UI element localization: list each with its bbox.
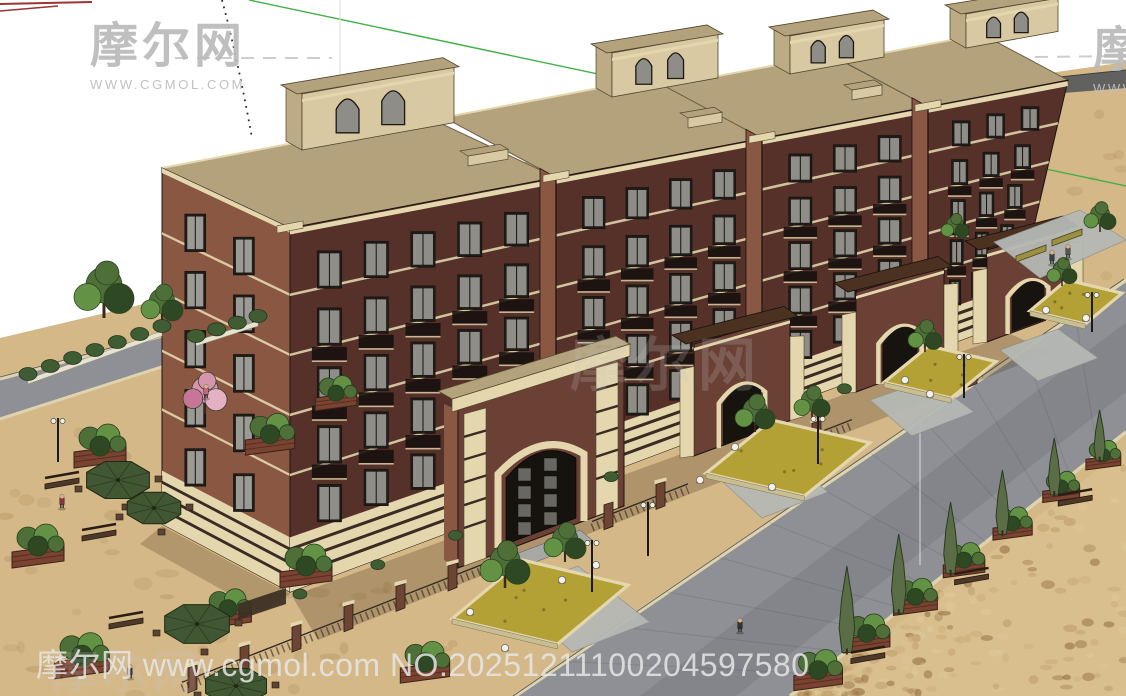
planter-bush	[328, 385, 344, 401]
cobble-stone	[1055, 588, 1067, 594]
balcony-railing	[873, 246, 906, 256]
lamp-globe	[1085, 292, 1090, 297]
planter-bush	[1068, 480, 1079, 491]
door-light	[544, 458, 557, 471]
tree-canopy	[749, 394, 765, 410]
hedge-bush	[131, 328, 149, 341]
plaza-mottle	[159, 594, 174, 599]
bed-speckle	[1060, 306, 1063, 309]
balcony-railing	[452, 311, 487, 324]
cobble-stone	[947, 625, 953, 630]
balcony-ledge	[621, 329, 654, 331]
gate-pier	[944, 283, 958, 359]
bed-speckle	[522, 589, 525, 592]
cobble-stone	[996, 633, 1009, 640]
cobble-stone	[926, 686, 937, 692]
balcony-railing	[621, 268, 654, 279]
cobble-stone	[907, 688, 915, 693]
plaza-mottle	[288, 684, 300, 694]
arched-window	[382, 91, 405, 125]
planter-bush	[72, 645, 93, 666]
tree-canopy	[544, 538, 563, 557]
cobble-stone	[1052, 675, 1065, 680]
bed-speckle	[1053, 300, 1056, 303]
cobble-stone	[1046, 543, 1052, 548]
person-head	[128, 664, 132, 668]
door-light	[518, 504, 531, 517]
bed-speckle	[542, 608, 545, 611]
cobble-stone	[911, 625, 921, 629]
arched-window	[811, 41, 825, 63]
planter-bush	[828, 661, 843, 676]
planter-bush	[924, 588, 938, 602]
planter-bush	[296, 556, 316, 576]
lamp-globe	[1094, 292, 1099, 297]
cobble-stone	[945, 602, 956, 610]
balcony-ledge	[828, 225, 861, 227]
plaza-mottle	[448, 640, 458, 648]
hedge-bush	[187, 330, 205, 343]
tree-canopy	[104, 284, 134, 314]
tree-canopy	[735, 409, 753, 427]
cobble-stone	[1063, 675, 1071, 680]
planter-bush	[956, 552, 972, 568]
balcony-railing	[359, 335, 394, 348]
plaza-mottle	[4, 556, 12, 562]
umbrella-hub	[195, 622, 199, 626]
cobble-stone	[944, 667, 955, 672]
dome-light	[558, 576, 565, 583]
dome-light	[501, 644, 508, 651]
cobble-stone	[938, 625, 946, 633]
hedge-bush	[153, 320, 171, 333]
balcony-railing	[708, 246, 741, 257]
cobble-stone	[981, 635, 993, 641]
tree-canopy	[941, 224, 954, 237]
cobble-stone	[1002, 653, 1010, 662]
patio-chair	[116, 514, 123, 520]
cobble-stone	[1110, 499, 1119, 504]
cobble-stone	[905, 673, 913, 679]
plaza-mottle	[100, 539, 109, 544]
cobble-stone	[1029, 675, 1039, 684]
balcony-railing	[452, 366, 487, 379]
balcony-ledge	[979, 187, 1003, 189]
bed-speckle	[960, 383, 963, 386]
dome-light	[592, 561, 599, 568]
cobble-stone	[893, 646, 905, 654]
tree-canopy	[955, 224, 969, 238]
balcony-ledge	[708, 257, 741, 259]
cobble-stone	[1090, 558, 1100, 565]
plaza-mottle	[105, 549, 120, 555]
balcony-ledge	[976, 227, 997, 229]
balcony-ledge	[948, 195, 972, 197]
balcony-railing	[499, 299, 534, 311]
cobble-stone	[1091, 639, 1099, 646]
bed-speckle	[821, 448, 824, 451]
plaza-mottle	[294, 650, 309, 662]
planter-bush	[90, 436, 110, 456]
fence-pillar	[604, 502, 613, 530]
tree-canopy	[1062, 269, 1077, 284]
planter-bush	[48, 536, 64, 552]
cobble-stone	[1065, 642, 1075, 649]
balcony-ledge	[312, 478, 347, 480]
balcony-railing	[621, 318, 654, 329]
cobble-stone	[976, 594, 985, 602]
bed-speckle	[792, 469, 795, 472]
lamp-globe	[650, 502, 655, 507]
balcony-railing	[1004, 210, 1025, 219]
patio-chair	[186, 504, 193, 510]
planter-bush	[93, 645, 110, 662]
cobble-stone	[862, 667, 873, 676]
cobble-stone	[1051, 527, 1060, 532]
tree-canopy	[74, 284, 101, 311]
yard-hedge	[371, 560, 385, 570]
cobble-stone	[965, 635, 971, 644]
person-body	[1066, 248, 1070, 255]
balcony-railing	[359, 450, 394, 463]
person-shadow	[202, 398, 210, 401]
bed-speckle	[1068, 292, 1071, 295]
cobble-stone	[1054, 515, 1067, 520]
planter-bush	[28, 536, 48, 556]
balcony-railing	[405, 435, 440, 448]
yard-hedge	[449, 530, 463, 540]
plaza-mottle	[155, 569, 179, 577]
balcony-ledge	[1011, 179, 1035, 181]
tree-canopy	[1084, 214, 1098, 228]
plaza-mottle	[319, 653, 340, 660]
person-head	[1066, 244, 1070, 248]
lamp-globe	[594, 540, 599, 545]
tree-canopy	[807, 386, 821, 400]
balcony-ledge	[499, 311, 534, 313]
lamp-globe	[60, 418, 65, 423]
cobble-stone	[1003, 619, 1012, 627]
patio-chair	[158, 529, 165, 535]
lamp-globe	[641, 502, 646, 507]
planter-bush	[1110, 448, 1121, 459]
court-mottle	[1113, 150, 1124, 159]
balcony-railing	[664, 354, 697, 365]
portal-side	[444, 404, 458, 568]
tree-canopy	[755, 409, 775, 429]
lamp-globe	[51, 418, 56, 423]
bed-speckle	[1082, 293, 1085, 296]
hedge-bush	[86, 344, 104, 357]
fence-pillar	[448, 563, 457, 591]
cobble-stone	[875, 682, 888, 689]
gate-pier	[842, 312, 856, 394]
cobble-stone	[1063, 624, 1077, 632]
cobble-stone	[1073, 525, 1084, 532]
balcony-ledge	[405, 392, 440, 394]
cobble-stone	[1040, 665, 1053, 670]
cobble-stone	[912, 642, 919, 650]
umbrella-hub	[152, 506, 156, 510]
arched-window	[1014, 12, 1028, 32]
tree-canopy	[156, 284, 173, 301]
hedge-bush	[64, 352, 82, 365]
balcony-ledge	[621, 379, 654, 381]
planter-bush	[972, 552, 985, 565]
balcony-railing	[312, 347, 347, 361]
cobble-stone	[999, 545, 1009, 553]
cobble-stone	[1037, 524, 1049, 532]
planter-bush	[416, 653, 435, 672]
cobble-stone	[1063, 656, 1074, 661]
cobble-stone	[1111, 594, 1119, 602]
yard-hedge	[837, 384, 851, 394]
balcony-ledge	[664, 268, 697, 270]
hedge-bush	[228, 316, 246, 329]
plaza-mottle	[340, 642, 349, 654]
fence-pillar	[188, 665, 197, 693]
arched-window	[987, 17, 1001, 37]
arched-window	[336, 99, 359, 133]
balcony-railing	[664, 257, 697, 268]
planter-bush	[858, 625, 876, 643]
cobble-stone	[988, 587, 999, 593]
planter-bush	[1020, 516, 1032, 528]
plaza-mottle	[25, 567, 38, 575]
plaza-mottle	[26, 666, 50, 673]
cobble-stone	[1060, 685, 1073, 690]
tree-canopy	[565, 538, 586, 559]
cobble-stone	[1107, 587, 1121, 591]
cobble-stone	[1082, 618, 1094, 626]
balcony-ledge	[873, 214, 906, 216]
person-shadow	[58, 508, 66, 511]
cobble-stone	[969, 598, 977, 605]
patio-chair	[155, 476, 162, 482]
door-light	[544, 512, 557, 525]
fence-pillar	[656, 481, 665, 509]
balcony-railing	[664, 305, 697, 316]
cobble-stone	[970, 631, 983, 637]
dome-light	[901, 376, 908, 383]
balcony-ledge	[312, 419, 347, 421]
bed-speckle	[515, 596, 518, 599]
cobble-stone	[1104, 686, 1113, 691]
door-light	[518, 486, 531, 499]
cobble-stone	[1092, 673, 1100, 678]
balcony-ledge	[359, 406, 394, 408]
cobble-stone	[970, 661, 981, 665]
cobble-stone	[1023, 644, 1034, 650]
bed-speckle	[564, 598, 567, 601]
lamp-globe	[957, 354, 962, 359]
cobble-stone	[1082, 673, 1094, 681]
tree-canopy	[480, 559, 503, 582]
balcony-railing	[784, 227, 817, 237]
penthouse-side	[286, 85, 302, 150]
hedge-bush	[19, 368, 37, 381]
patio-chair	[201, 649, 208, 655]
balcony-ledge	[405, 336, 440, 338]
cobble-stone	[946, 593, 955, 598]
tree-canopy	[951, 213, 962, 224]
balcony-ledge	[452, 324, 487, 326]
tree-canopy	[812, 399, 830, 417]
balcony-railing	[947, 266, 966, 275]
cobble-stone	[968, 587, 975, 596]
person-shadow	[126, 678, 134, 681]
person-head	[60, 494, 64, 498]
dome-light	[696, 476, 703, 483]
gate-pier	[680, 366, 694, 458]
cobble-stone	[832, 689, 845, 695]
umbrella-hub	[116, 478, 120, 482]
cobble-stone	[1098, 663, 1109, 669]
bed-speckle	[933, 363, 936, 366]
door-light	[544, 494, 557, 507]
balcony-railing	[1011, 170, 1035, 179]
tree-canopy	[925, 332, 942, 349]
cobble-stone	[1011, 581, 1018, 586]
yard-hedge	[293, 589, 307, 599]
cobble-stone	[936, 635, 947, 640]
planter-bush	[809, 661, 828, 680]
tree-canopy	[1095, 202, 1108, 215]
balcony-ledge	[1004, 219, 1025, 221]
person-body	[1050, 254, 1054, 261]
person-body	[738, 622, 742, 629]
balcony-railing	[976, 218, 997, 227]
balcony-ledge	[784, 237, 817, 239]
lamp-globe	[966, 354, 971, 359]
tree-canopy	[95, 261, 119, 285]
cobble-stone	[991, 555, 1004, 560]
tree-canopy	[559, 522, 576, 539]
person-body	[60, 498, 64, 505]
cobble-stone	[938, 671, 952, 678]
tree-canopy	[1047, 269, 1061, 283]
hedge-bush	[108, 336, 126, 349]
cobble-stone	[927, 626, 934, 633]
tree-canopy	[505, 559, 530, 584]
cobble-stone	[1067, 578, 1079, 586]
balcony-ledge	[359, 463, 394, 465]
bed-speckle	[503, 620, 506, 623]
cobble-stone	[1087, 652, 1094, 658]
balcony-railing	[979, 178, 1003, 187]
balcony-railing	[621, 367, 654, 378]
balcony-ledge	[359, 348, 394, 350]
fence-pillar	[344, 604, 353, 632]
plaza-mottle	[37, 497, 52, 508]
dome-light	[1082, 314, 1089, 321]
cobble-stone	[953, 637, 959, 642]
cobble-stone	[924, 612, 930, 617]
person-shadow	[1064, 258, 1072, 261]
tree-canopy	[908, 332, 923, 347]
patio-chair	[235, 620, 242, 626]
person-shadow	[1048, 264, 1056, 267]
person-head	[738, 618, 742, 622]
cobble-stone	[920, 662, 927, 667]
patio-chair	[272, 682, 279, 688]
planter-bush	[110, 436, 126, 452]
bed-speckle	[929, 379, 932, 382]
cobble-stone	[1078, 504, 1087, 511]
patio-chair	[153, 630, 160, 636]
tree-canopy	[162, 300, 183, 321]
balcony-ledge	[664, 316, 697, 318]
balcony-ledge	[664, 365, 697, 367]
cobble-stone	[899, 625, 911, 630]
dome-light	[466, 608, 473, 615]
cobble-stone	[886, 666, 897, 671]
cobble-stone	[1027, 567, 1037, 571]
cobble-stone	[1103, 621, 1114, 627]
cobble-stone	[1111, 601, 1119, 607]
balcony-railing	[708, 293, 741, 304]
door-light	[518, 468, 531, 481]
planter-bush	[344, 385, 357, 398]
yard-hedge	[604, 472, 618, 482]
planter-bush	[907, 588, 924, 605]
balcony-ledge	[577, 291, 610, 293]
fence-pillar	[292, 624, 301, 652]
gate-pier	[973, 268, 987, 344]
dome-light	[1042, 306, 1049, 313]
person-body	[204, 388, 208, 395]
arched-window	[668, 53, 684, 79]
cobble-stone	[1083, 544, 1095, 552]
model-preview-image: 摩尔网 WWW.CGMOL.COM 摩尔网 WWW.CGMOL.COM 摩尔网 …	[0, 0, 1126, 696]
bed-speckle	[740, 449, 743, 452]
tree-canopy	[498, 541, 518, 561]
cobble-stone	[916, 616, 924, 622]
cobble-stone	[1022, 560, 1033, 566]
balcony-ledge	[621, 280, 654, 282]
cobble-stone	[1041, 580, 1055, 589]
cobble-stone	[948, 648, 956, 656]
arched-window	[839, 35, 853, 57]
hedge-bush	[208, 323, 226, 336]
cobble-stone	[854, 677, 864, 683]
cobble-stone	[1044, 659, 1058, 664]
balcony-railing	[828, 215, 861, 225]
balcony-railing	[405, 323, 440, 336]
cobble-stone	[1075, 640, 1087, 648]
cobble-stone	[903, 666, 909, 671]
balcony-railing	[948, 186, 972, 195]
balcony-railing	[577, 279, 610, 291]
patio-chair	[75, 486, 82, 492]
person-shadow	[736, 632, 744, 635]
court-mottle	[1100, 271, 1112, 280]
balcony-ledge	[708, 304, 741, 306]
balcony-railing	[828, 259, 861, 269]
cobble-stone	[939, 592, 947, 599]
planter-bush	[261, 425, 280, 444]
cobble-stone	[1075, 630, 1085, 635]
cobble-stone	[908, 635, 921, 643]
cobble-stone	[938, 611, 951, 616]
tree-canopy	[183, 389, 203, 409]
person-head	[1050, 250, 1054, 254]
3d-render-scene	[0, 0, 1126, 696]
balcony-ledge	[405, 448, 440, 450]
cobble-stone	[993, 683, 1000, 689]
cobble-stone	[931, 649, 943, 653]
planter-bush	[316, 556, 332, 572]
